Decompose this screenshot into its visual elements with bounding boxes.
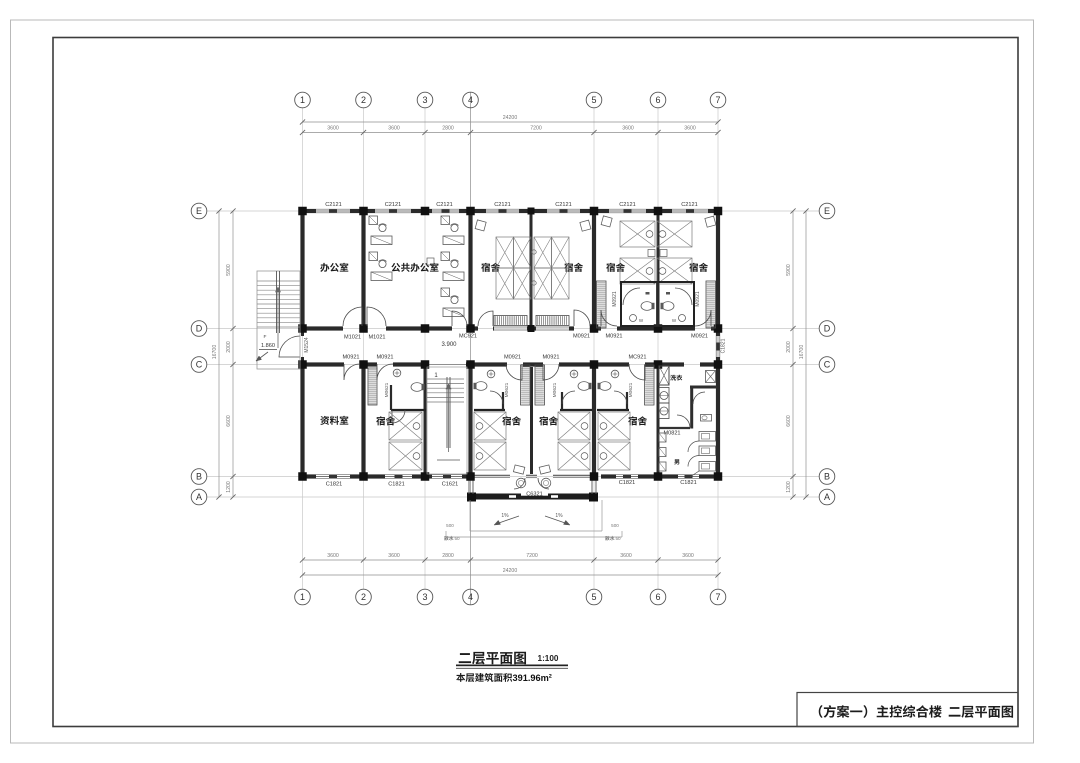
svg-text:M1524: M1524 (304, 337, 310, 353)
svg-text:C: C (824, 360, 831, 370)
svg-text:1200: 1200 (226, 481, 232, 493)
svg-text:MC921: MC921 (628, 355, 646, 361)
svg-text:C1821: C1821 (326, 482, 342, 488)
svg-text:C1821: C1821 (619, 480, 635, 486)
svg-text:2000: 2000 (786, 341, 792, 353)
svg-text:C: C (196, 360, 203, 370)
svg-text:3600: 3600 (682, 553, 694, 559)
svg-text:2: 2 (361, 592, 366, 602)
svg-text:7200: 7200 (526, 553, 538, 559)
svg-text:4: 4 (468, 95, 473, 105)
svg-text:1:100: 1:100 (538, 654, 559, 663)
svg-text:4: 4 (468, 592, 473, 602)
svg-text:M0921: M0921 (691, 334, 708, 340)
svg-text:2000: 2000 (226, 341, 232, 353)
svg-text:M0921: M0921 (504, 355, 521, 361)
svg-text:24200: 24200 (503, 568, 518, 574)
svg-text:M0621: M0621 (552, 382, 558, 397)
svg-text:C2121: C2121 (555, 202, 571, 208)
svg-text:3600: 3600 (388, 126, 400, 132)
svg-text:D: D (824, 324, 831, 334)
svg-text:3600: 3600 (327, 126, 339, 132)
svg-text:C2121: C2121 (385, 202, 401, 208)
svg-text:B: B (824, 472, 830, 482)
svg-text:7: 7 (715, 592, 720, 602)
svg-text:1200: 1200 (786, 481, 792, 493)
svg-text:C2121: C2121 (619, 202, 635, 208)
svg-text:2800: 2800 (442, 126, 454, 132)
svg-text:M0921: M0921 (342, 355, 359, 361)
svg-text:A: A (196, 492, 202, 502)
svg-text:C2121: C2121 (494, 202, 510, 208)
svg-text:C1821: C1821 (721, 338, 727, 353)
svg-text:C1821: C1821 (680, 480, 696, 486)
svg-text:M0921: M0921 (542, 355, 559, 361)
svg-text:391.96m²: 391.96m² (513, 673, 552, 683)
svg-text:5: 5 (591, 95, 596, 105)
svg-text:16700: 16700 (212, 345, 218, 360)
svg-text:M0621: M0621 (504, 382, 510, 397)
svg-text:B: B (196, 472, 202, 482)
svg-text:C2121: C2121 (681, 202, 697, 208)
svg-text:M0921: M0921 (573, 334, 590, 340)
svg-text:6: 6 (655, 592, 660, 602)
svg-text:24200: 24200 (503, 115, 518, 121)
svg-text:E: E (824, 206, 830, 216)
svg-text:C2121: C2121 (436, 202, 452, 208)
svg-text:M1021: M1021 (368, 335, 385, 341)
svg-text:3600: 3600 (684, 126, 696, 132)
svg-text:3: 3 (422, 592, 427, 602)
svg-text:6600: 6600 (786, 415, 792, 427)
svg-text:5900: 5900 (786, 264, 792, 276)
svg-text:6: 6 (655, 95, 660, 105)
svg-text:1%: 1% (555, 513, 563, 519)
svg-text:50: 50 (454, 536, 460, 541)
svg-text:M0621: M0621 (384, 382, 390, 397)
svg-text:M0921: M0921 (695, 291, 701, 307)
svg-text:M0621: M0621 (628, 382, 634, 397)
svg-text:C6321: C6321 (526, 492, 542, 498)
svg-text:500: 500 (446, 523, 454, 528)
svg-text:6600: 6600 (226, 415, 232, 427)
svg-text:2: 2 (361, 95, 366, 105)
svg-text:1.860: 1.860 (261, 343, 275, 349)
svg-text:M0921: M0921 (376, 355, 393, 361)
svg-text:3600: 3600 (620, 553, 632, 559)
svg-text:C1821: C1821 (388, 482, 404, 488)
svg-text:16700: 16700 (799, 345, 805, 360)
svg-text:F: F (264, 334, 267, 340)
svg-text:M0921: M0921 (612, 291, 618, 307)
svg-text:3: 3 (422, 95, 427, 105)
svg-text:7200: 7200 (530, 126, 542, 132)
svg-text:E: E (196, 206, 202, 216)
svg-text:50: 50 (615, 536, 621, 541)
svg-text:C2121: C2121 (325, 202, 341, 208)
svg-text:500: 500 (611, 523, 619, 528)
svg-text:M1021: M1021 (344, 335, 361, 341)
svg-text:1%: 1% (501, 513, 509, 519)
svg-text:2800: 2800 (442, 553, 454, 559)
svg-text:C1621: C1621 (442, 482, 458, 488)
svg-text:3600: 3600 (622, 126, 634, 132)
svg-text:3600: 3600 (388, 553, 400, 559)
svg-text:5900: 5900 (226, 264, 232, 276)
svg-text:D: D (196, 324, 203, 334)
svg-text:3600: 3600 (327, 553, 339, 559)
svg-text:M0921: M0921 (605, 334, 622, 340)
svg-text:A: A (824, 492, 830, 502)
svg-text:1: 1 (300, 592, 305, 602)
svg-text:7: 7 (715, 95, 720, 105)
svg-text:1: 1 (300, 95, 305, 105)
svg-text:3.900: 3.900 (441, 342, 457, 348)
svg-text:5: 5 (591, 592, 596, 602)
svg-text:MC921: MC921 (459, 334, 477, 340)
